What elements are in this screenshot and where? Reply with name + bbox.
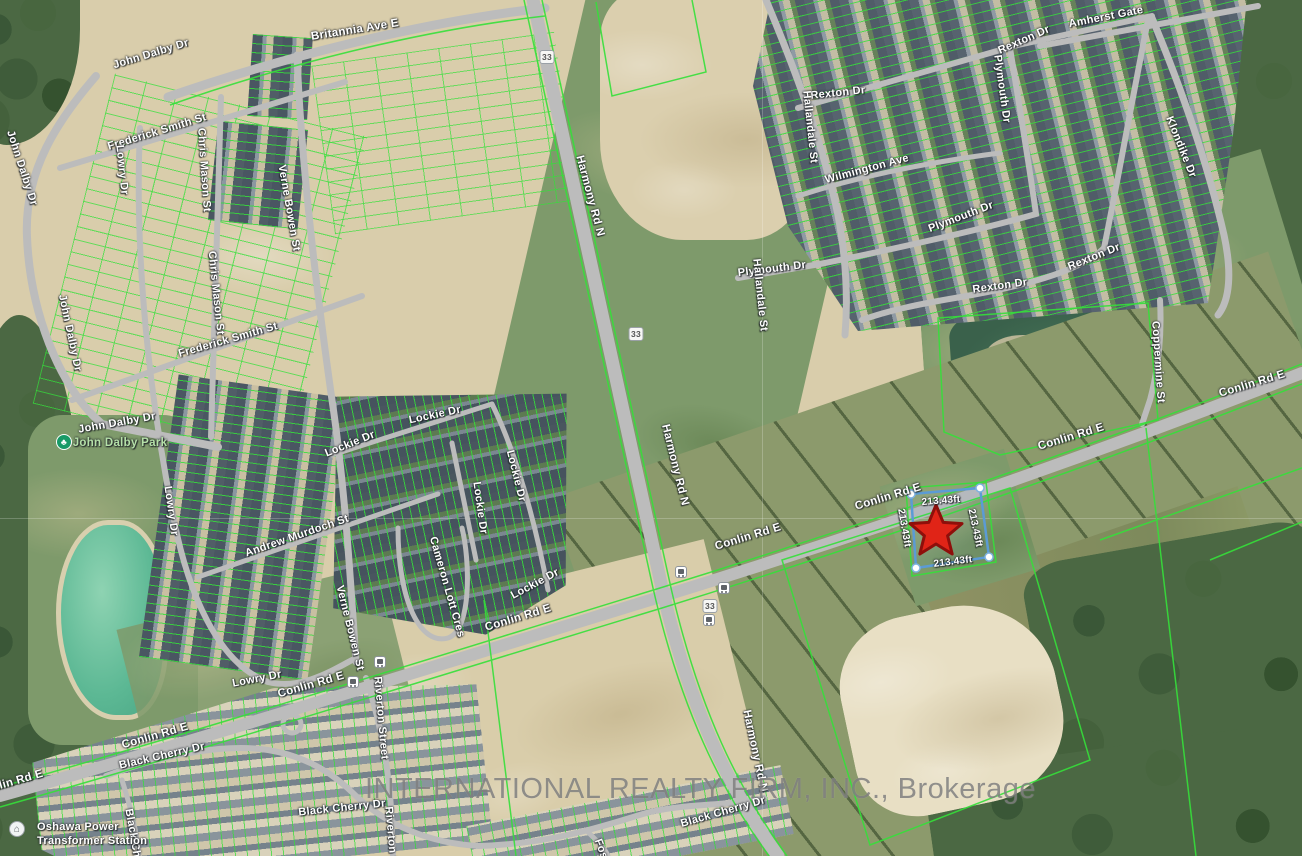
- street-label-chris-mason-st-2: Chris Mason St: [206, 250, 227, 335]
- street-label-john-dalby-dr-3: John Dalby Dr: [56, 293, 84, 372]
- street-label-hallandale-st-2: Hallandale St: [750, 258, 770, 332]
- street-label-lockie-dr-4: Lockie Dr: [470, 481, 489, 535]
- street-label-rexton-dr: Rexton Dr: [996, 23, 1051, 56]
- street-label-john-dalby-dr-4: John Dalby Dr: [77, 410, 156, 435]
- street-label-lowry-dr-3: Lowry Dr: [231, 668, 282, 689]
- park-icon[interactable]: ♣: [56, 434, 72, 450]
- street-label-harmony-rd-n-2: Harmony Rd N: [659, 423, 691, 507]
- poi-label-oshawa-power-line2[interactable]: Transformer Station: [37, 835, 147, 847]
- street-label-verne-bowen-st-2: Verne Bowen St: [334, 584, 367, 672]
- street-label-lockie-dr-2: Lockie Dr: [323, 429, 376, 460]
- power-station-icon[interactable]: ⌂: [9, 821, 25, 837]
- street-label-conlin-rd-e-4: Conlin Rd E: [1037, 421, 1106, 452]
- transit-stop-icon-2[interactable]: [718, 582, 730, 594]
- street-label-john-dalby-dr-2: John Dalby Dr: [4, 129, 40, 207]
- street-label-lockie-dr: Lockie Dr: [408, 404, 462, 427]
- map-labels-layer: Britannia Ave EJohn Dalby DrFrederick Sm…: [0, 0, 1302, 856]
- street-label-plymouth-dr-3: Plymouth Dr: [737, 259, 807, 279]
- satellite-map[interactable]: Britannia Ave EJohn Dalby DrFrederick Sm…: [0, 0, 1302, 856]
- street-label-conlin-rd-e: Conlin Rd E: [484, 602, 553, 633]
- street-label-britannia-ave-e: Britannia Ave E: [310, 17, 399, 43]
- street-label-rexton-dr-2: Rexton Dr: [810, 84, 866, 102]
- street-label-hallandale-st: Hallandale St: [800, 90, 820, 164]
- route-shield-33-2: 33: [629, 327, 644, 341]
- street-label-verne-bowen-st: Verne Bowen St: [276, 164, 303, 252]
- street-label-lockie-dr-5: Lockie Dr: [509, 566, 561, 601]
- street-label-rexton-dr-3: Rexton Dr: [1066, 241, 1122, 273]
- route-shield-33-3: 33: [703, 599, 718, 613]
- street-label-john-dalby-dr: John Dalby Dr: [112, 37, 191, 71]
- measurement-label-left: 213.43ft: [895, 508, 913, 548]
- street-label-rexton-dr-4: Rexton Dr: [972, 276, 1028, 296]
- street-label-andrew-murdoch-st: Andrew Murdoch St: [244, 513, 351, 560]
- street-label-conlin-rd-e-2: Conlin Rd E: [714, 521, 783, 552]
- measurement-label-top: 213.43ft: [921, 494, 961, 508]
- poi-label-oshawa-power-line1[interactable]: Oshawa Power: [37, 821, 119, 833]
- street-label-plymouth-dr: Plymouth Dr: [991, 54, 1012, 124]
- street-label-coppermine-st: Coppermine St: [1149, 321, 1167, 404]
- street-label-chris-mason-st: Chris Mason St: [195, 128, 213, 213]
- street-label-lowry-dr: Lowry Dr: [113, 144, 130, 195]
- street-label-cameron-lott-cres: Cameron Lott Cres: [427, 535, 467, 638]
- poi-label-john-dalby-park[interactable]: John Dalby Park: [73, 437, 168, 449]
- street-label-conlin-rd-e-8: Conlin Rd E: [0, 768, 45, 798]
- street-label-riverton-street-2: Riverton Street: [382, 806, 401, 856]
- street-label-black-cherry-dr-4: Black Cherry Dr: [122, 808, 149, 856]
- street-label-amherst-gate: Amherst Gate: [1068, 4, 1145, 30]
- street-label-black-cherry-dr: Black Cherry Dr: [118, 740, 206, 771]
- transit-stop-icon-3[interactable]: [703, 614, 715, 626]
- measurement-label-right: 213.43ft: [966, 508, 985, 548]
- street-label-conlin-rd-e-6: Conlin Rd E: [276, 670, 345, 700]
- street-label-lockie-dr-3: Lockie Dr: [504, 449, 528, 503]
- measurement-label-bottom: 213.43ft: [933, 554, 973, 570]
- transit-stop-icon-4[interactable]: [374, 656, 386, 668]
- transit-stop-icon-5[interactable]: [347, 676, 359, 688]
- street-label-harmony-rd-n-3: Harmony Rd N: [740, 709, 769, 793]
- street-label-conlin-rd-e-5: Conlin Rd E: [1218, 368, 1287, 399]
- street-label-lowry-dr-2: Lowry Dr: [162, 485, 181, 536]
- street-label-harmony-rd-n: Harmony Rd N: [573, 154, 606, 238]
- street-label-plymouth-dr-2: Plymouth Dr: [927, 199, 995, 235]
- street-label-fos: Fos: [592, 837, 610, 856]
- street-label-conlin-rd-e-7: Conlin Rd E: [120, 721, 189, 751]
- street-label-black-cherry-dr-2: Black Cherry Dr: [298, 797, 386, 818]
- street-label-riverton-street: Riverton Street: [371, 676, 390, 760]
- street-label-conlin-rd-e-3: Conlin Rd E: [854, 481, 923, 512]
- transit-stop-icon[interactable]: [675, 566, 687, 578]
- street-label-klondike-dr: Klondike Dr: [1163, 115, 1198, 180]
- street-label-frederick-smith-st: Frederick Smith St: [106, 111, 208, 152]
- street-label-wilmington-ave: Wilmington Ave: [824, 152, 911, 186]
- route-shield-33: 33: [540, 50, 555, 64]
- street-label-black-cherry-dr-3: Black Cherry Dr: [679, 794, 767, 830]
- street-label-frederick-smith-st-2: Frederick Smith St: [177, 320, 279, 360]
